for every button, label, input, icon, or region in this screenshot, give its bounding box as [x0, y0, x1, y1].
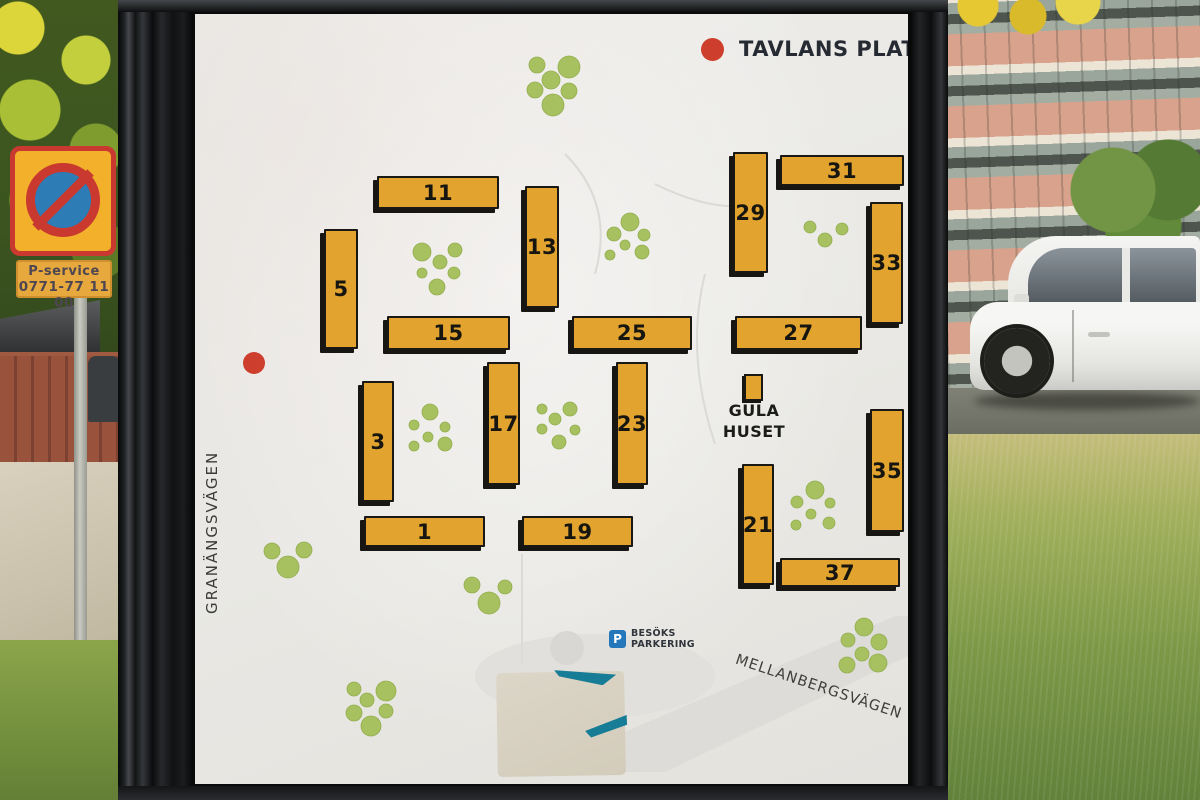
car-door-handle [1088, 332, 1110, 337]
right-background [948, 0, 1200, 800]
building-29: 29 [733, 152, 768, 273]
building-number: 3 [370, 430, 385, 454]
building-number: 33 [871, 251, 901, 275]
building-number: 13 [527, 235, 557, 259]
building-number: 19 [562, 520, 592, 544]
street-label-granangsvagen: GRANÄNGSVÄGEN [203, 454, 221, 614]
building-number: 37 [825, 561, 855, 585]
building-19: 19 [522, 516, 633, 547]
building-gula-huset [744, 374, 763, 401]
visitor-parking-label: P BESÖKS PARKERING [609, 628, 729, 662]
visitor-parking-line1: BESÖKS [631, 628, 695, 639]
sidewalk [0, 462, 132, 644]
building-number: 15 [433, 321, 463, 345]
visitor-parking-text: BESÖKS PARKERING [631, 628, 695, 650]
map-surface: 1113515252729313331723119213537 GULA HUS… [193, 12, 910, 786]
board-frame-bottom [118, 786, 948, 800]
building-17: 17 [487, 362, 520, 485]
gula-huset-line1: GULA [704, 400, 804, 421]
building-number: 1 [417, 520, 432, 544]
car-door-line [1072, 310, 1074, 382]
building-number: 29 [735, 201, 765, 225]
building-number: 27 [783, 321, 813, 345]
no-parking-icon [26, 163, 100, 237]
left-background: P-service 0771-77 11 00 [0, 0, 132, 800]
no-parking-plate [10, 146, 116, 256]
building-33: 33 [870, 202, 903, 324]
board-frame-left [118, 0, 193, 800]
building-number: 5 [333, 277, 348, 301]
map-board: 1113515252729313331723119213537 GULA HUS… [118, 0, 948, 800]
building-37: 37 [780, 558, 900, 587]
sign-pole [74, 290, 87, 640]
car-windows [1028, 248, 1196, 304]
building-35: 35 [870, 409, 904, 532]
p-service-label: P-service [18, 264, 110, 279]
maple-leaves [948, 0, 1138, 62]
visitor-parking-line2: PARKERING [631, 639, 695, 650]
building-11: 11 [377, 176, 499, 209]
car-shadow [974, 392, 1200, 410]
building-21: 21 [742, 464, 774, 585]
legend: TAVLANS PLATS [701, 35, 910, 63]
grass-left [0, 640, 132, 800]
gula-huset-line2: HUSET [704, 421, 804, 442]
parking-icon: P [609, 630, 626, 648]
parked-dark-car [88, 356, 120, 422]
building-27: 27 [735, 316, 862, 350]
building-3: 3 [362, 381, 394, 502]
building-number: 11 [423, 181, 453, 205]
legend-red-dot-icon [701, 38, 724, 61]
p-service-phone: 0771-77 11 00 [18, 279, 110, 311]
building-number: 25 [617, 321, 647, 345]
board-frame-top [118, 0, 948, 12]
building-number: 23 [617, 412, 647, 436]
building-31: 31 [780, 155, 904, 186]
board-frame-right [910, 0, 948, 800]
board-location-marker [243, 352, 265, 374]
gula-huset-label: GULA HUSET [704, 400, 804, 442]
building-number: 21 [743, 513, 773, 537]
building-25: 25 [572, 316, 692, 350]
p-service-plate: P-service 0771-77 11 00 [16, 260, 112, 298]
worn-sticker-patch [496, 671, 626, 777]
white-car [970, 236, 1200, 412]
building-1: 1 [364, 516, 485, 547]
building-23: 23 [616, 362, 648, 485]
building-5: 5 [324, 229, 358, 349]
building-number: 35 [872, 459, 902, 483]
car-wheel [984, 328, 1050, 394]
legend-title: TAVLANS PLATS [739, 37, 910, 61]
patch-teal-fragment [554, 669, 616, 686]
no-parking-slash [32, 169, 94, 231]
building-number: 17 [488, 412, 518, 436]
photo-scene: P-service 0771-77 11 00 [0, 0, 1200, 800]
building-number: 31 [827, 159, 857, 183]
building-13: 13 [525, 186, 559, 308]
building-15: 15 [387, 316, 510, 350]
patch-teal-fragment [585, 715, 627, 738]
grass-slope [948, 434, 1200, 800]
